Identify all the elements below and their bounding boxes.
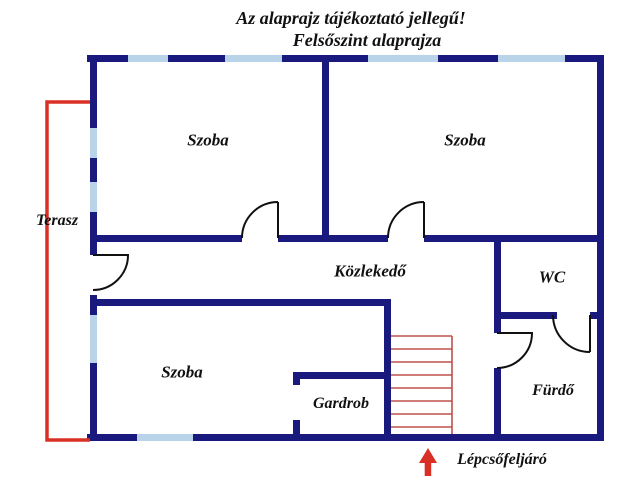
- staircase-arrow-icon: [419, 448, 437, 476]
- room-label-wc: WC: [539, 269, 565, 286]
- room-label-gardrob: Gardrob: [313, 396, 369, 412]
- staircase-treads: [391, 336, 452, 434]
- floor-name-title: Felsőszint alaprajza: [293, 31, 442, 49]
- walls: [87, 55, 604, 441]
- top-left-room-door-arc: [242, 202, 278, 238]
- door-arcs: [93, 202, 590, 368]
- room-label-szoba-bottom-left: Szoba: [161, 364, 203, 381]
- room-label-kozlekedo: Közlekedő: [334, 263, 406, 280]
- floor-plan-page: Az alaprajz tájékoztató jellegű! Felsősz…: [0, 0, 640, 480]
- plan-disclaimer-title: Az alaprajz tájékoztató jellegű!: [236, 9, 466, 27]
- terrace-door-arc: [93, 255, 128, 290]
- wc-door-arc: [553, 315, 590, 352]
- room-label-terasz: Terasz: [36, 213, 78, 229]
- room-label-szoba-top-left: Szoba: [187, 132, 229, 149]
- room-label-furdo: Fürdő: [532, 383, 574, 399]
- staircase-label: Lépcsőfeljáró: [457, 452, 547, 468]
- top-right-room-door-arc: [388, 202, 424, 238]
- bathroom-door-arc: [497, 333, 532, 368]
- room-label-szoba-top-right: Szoba: [444, 132, 486, 149]
- terrace-outline: [47, 102, 90, 440]
